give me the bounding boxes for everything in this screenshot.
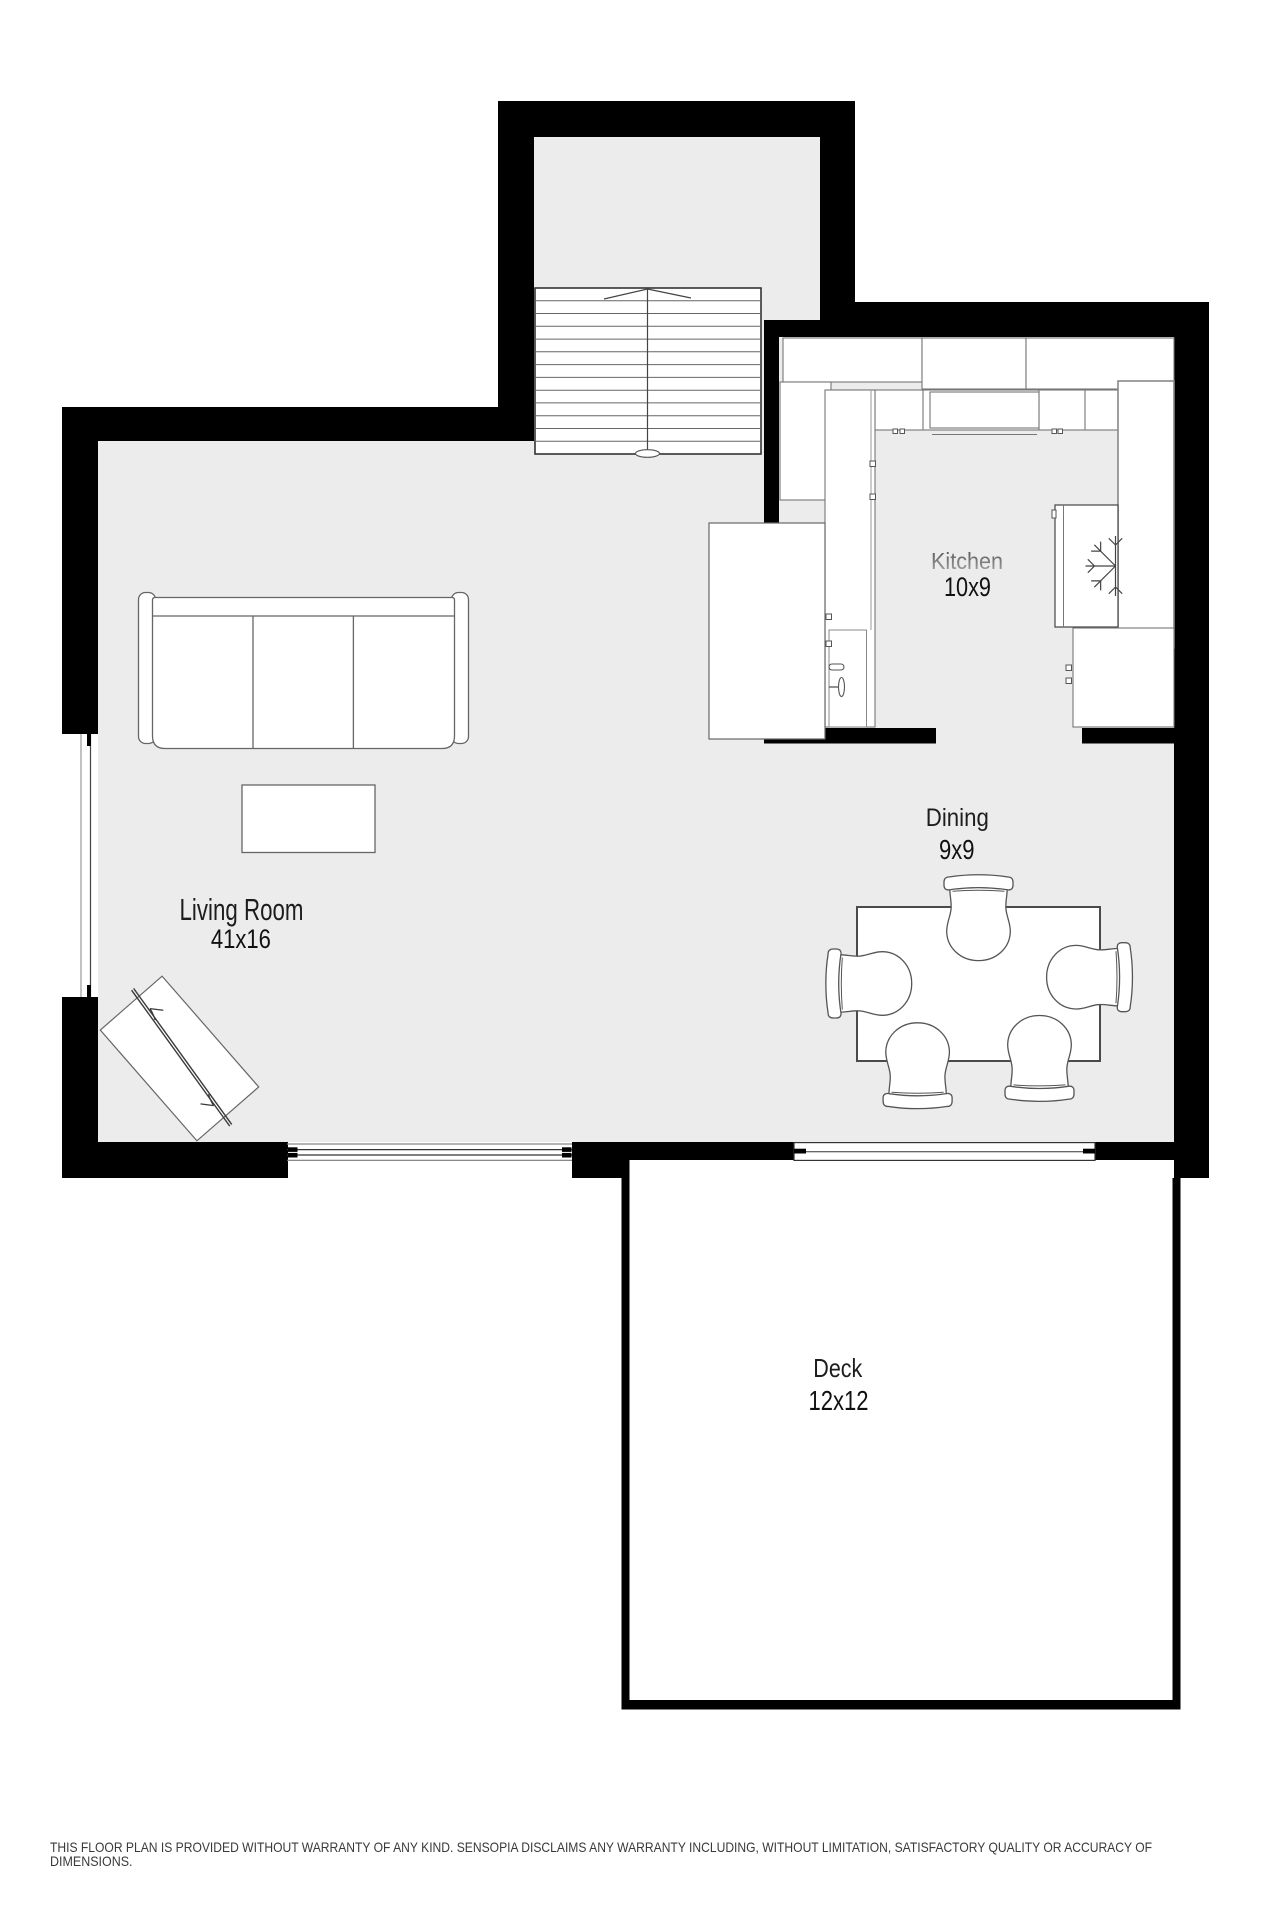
svg-text:9x9: 9x9 [939,834,975,865]
svg-text:DIMENSIONS.: DIMENSIONS. [50,1853,133,1869]
svg-text:10x9: 10x9 [944,572,991,602]
svg-text:41x16: 41x16 [211,924,271,954]
svg-text:Living Room: Living Room [180,893,304,927]
svg-text:12x12: 12x12 [809,1385,869,1416]
svg-text:Kitchen: Kitchen [931,548,1003,574]
svg-text:Deck: Deck [813,1355,862,1383]
svg-text:THIS FLOOR PLAN IS PROVIDED WI: THIS FLOOR PLAN IS PROVIDED WITHOUT WARR… [50,1839,1152,1855]
svg-text:Dining: Dining [926,804,989,832]
